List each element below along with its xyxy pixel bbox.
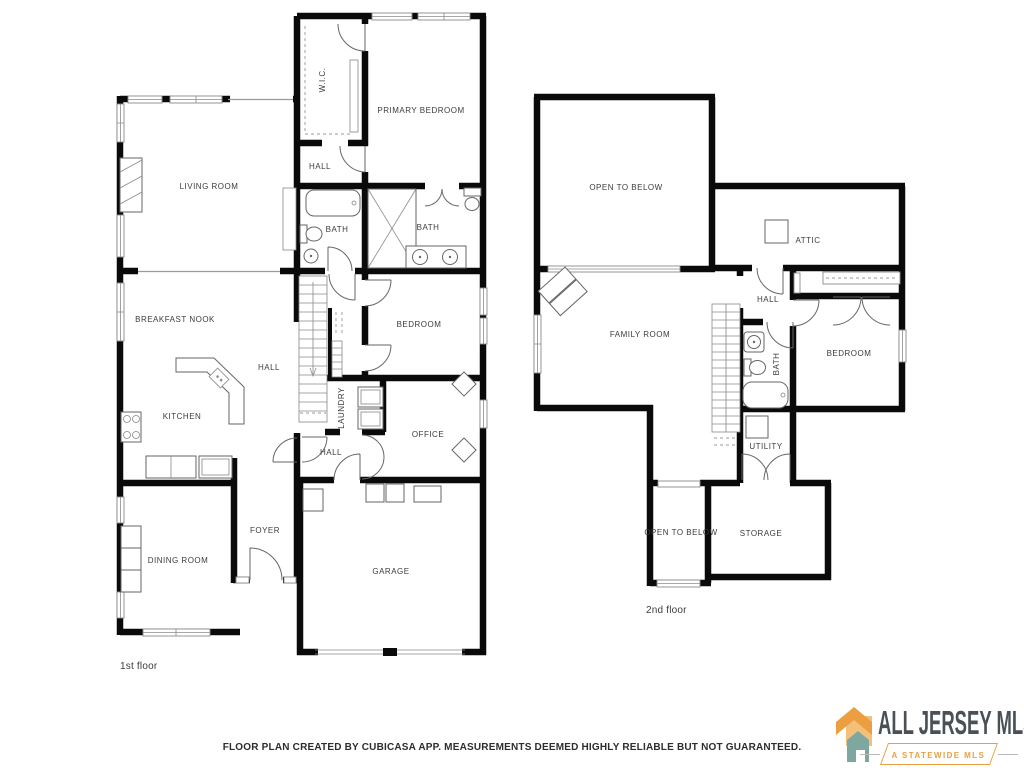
all-jersey-mls-logo: ALL JERSEY MLS A STATEWIDE MLS [832,704,1022,766]
logo-tagline-ribbon: A STATEWIDE MLS [860,743,1018,765]
room-label-living-room: LIVING ROOM [180,182,239,191]
first-floor-plan: LIVING ROOM W.I.C. PRIMARY BEDROOM HALL … [117,13,487,672]
room-label-hall-center: HALL [258,363,280,372]
room-label-bedroom-2f: BEDROOM [827,349,872,358]
room-label-breakfast-nook: BREAKFAST NOOK [135,315,215,324]
room-label-open-to-below-bottom: OPEN TO BELOW [644,528,717,537]
second-floor-stairs [712,304,740,445]
room-label-kitchen: KITCHEN [163,412,202,421]
room-label-office: OFFICE [412,430,444,439]
utility-equipment [746,416,768,438]
room-label-dining-room: DINING ROOM [148,556,209,565]
ribbon-line-right [998,754,1018,755]
room-label-attic: ATTIC [795,236,820,245]
first-floor-stairs [299,276,342,422]
room-label-wic: W.I.C. [318,68,327,93]
room-label-foyer: FOYER [250,526,280,535]
room-label-hall: HALL [757,295,779,304]
room-label-laundry: LAUNDRY [337,387,346,429]
wall-chase [283,188,296,250]
toilet [464,188,481,196]
room-label-garage: GARAGE [372,567,409,576]
ribbon-line-left [860,754,880,755]
logo-title: ALL JERSEY MLS [878,706,1024,740]
room-label-family-room: FAMILY ROOM [610,330,670,339]
logo-tagline: A STATEWIDE MLS [892,751,986,760]
floor-plan-drawing: LIVING ROOM W.I.C. PRIMARY BEDROOM HALL … [0,0,1024,768]
room-label-bath: BATH [772,353,781,376]
room-label-primary-bedroom: PRIMARY BEDROOM [377,106,464,115]
room-label-bath-right: BATH [417,223,440,232]
room-label-hall-top: HALL [309,162,331,171]
room-label-bath-left: BATH [326,225,349,234]
room-label-open-to-below-top: OPEN TO BELOW [589,183,662,192]
family-room-sofa [538,267,587,316]
room-label-bedroom: BEDROOM [397,320,442,329]
second-floor-plan: OPEN TO BELOW ATTIC HALL FAMILY ROOM BAT… [534,97,906,616]
room-label-hall-lower: HALL [320,448,342,457]
room-label-storage: STORAGE [740,529,782,538]
room-label-utility: UTILITY [749,442,782,451]
second-floor-caption: 2nd floor [646,605,687,616]
first-floor-caption: 1st floor [120,661,158,672]
attic-box [765,220,788,243]
